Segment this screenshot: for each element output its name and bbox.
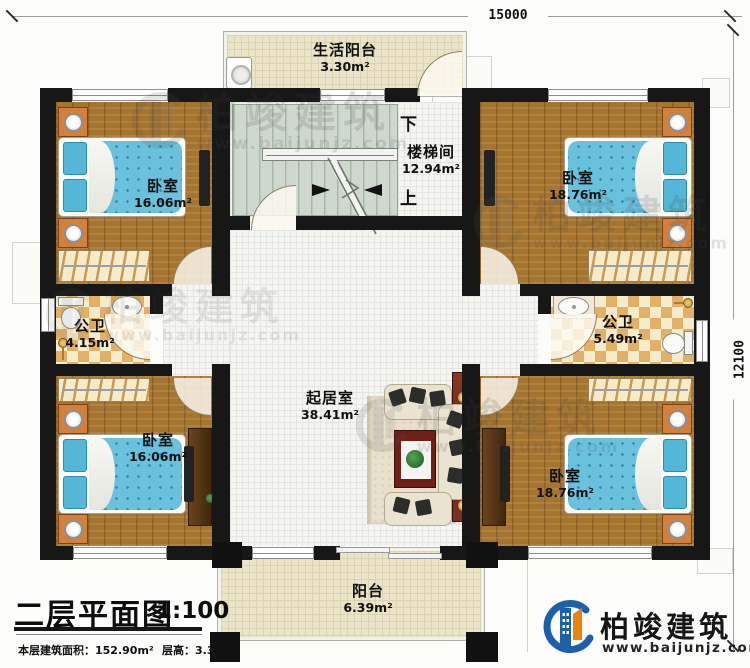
sofa-cushion (409, 387, 427, 405)
wall-segment (296, 216, 462, 230)
wall-segment (385, 88, 420, 102)
nightstand (662, 218, 692, 248)
column (466, 632, 498, 662)
floor-area-text: 本层建筑面积：152.90m² (18, 642, 154, 658)
room-name: 生活阳台 (295, 42, 395, 60)
pillows (663, 439, 687, 509)
floor-height-text: 层高：3.3m (162, 642, 226, 658)
room-name: 起居室 (268, 390, 392, 408)
nightstand (662, 514, 692, 544)
room-area: 18.76m² (515, 188, 641, 203)
corridor-right-floor (462, 284, 538, 376)
room-area: 6.39m² (318, 601, 418, 616)
dimension-line-top (12, 16, 742, 17)
shower-stem (674, 302, 683, 304)
sofa-cushion (415, 499, 432, 516)
wall-segment (150, 296, 163, 314)
wall-segment (230, 216, 250, 230)
wardrobe (588, 378, 692, 402)
nightstand (58, 107, 88, 137)
brand-logo-icon (540, 600, 594, 658)
brand-website: www.baijunjz.com (602, 640, 750, 656)
room-area: 16.06m² (95, 450, 221, 465)
sliding-door-panel (388, 553, 442, 559)
dimension-width: 15000 (468, 8, 548, 23)
nightstand (58, 514, 88, 544)
room-area: 38.41m² (268, 408, 392, 423)
room-area: 18.76m² (502, 486, 628, 501)
tv (484, 150, 495, 206)
floor-plan-canvas: 15000 12100 (0, 0, 750, 668)
wall-segment (462, 102, 480, 296)
room-label-bedroom-top-right: 卧室 18.76m² (515, 170, 641, 202)
sliding-door-panel (336, 547, 390, 553)
wall-segment (652, 546, 710, 560)
nightstand (662, 404, 692, 434)
pillows (63, 439, 87, 509)
toilet (684, 331, 693, 355)
plant (406, 450, 424, 468)
sofa-cushion (429, 390, 446, 407)
wall-segment (56, 364, 172, 376)
room-label-bedroom-bottom-right: 卧室 18.76m² (502, 468, 628, 500)
washing-machine (226, 57, 252, 89)
room-label-stairwell: 楼梯间 12.94m² (396, 144, 466, 176)
window (528, 547, 652, 559)
wall-segment (40, 88, 72, 102)
wardrobe (58, 378, 150, 402)
stair-up-label: 上 (400, 184, 417, 209)
column (212, 542, 242, 568)
window (73, 547, 167, 559)
room-name: 阳台 (318, 583, 418, 601)
window (548, 89, 648, 101)
room-name: 楼梯间 (396, 144, 466, 162)
nightstand (58, 218, 88, 248)
nightstand (662, 107, 692, 137)
sheet-line (527, 548, 528, 652)
room-name: 公卫 (580, 314, 656, 332)
room-label-bedroom-top-left: 卧室 16.06m² (100, 178, 226, 210)
room-area: 4.15m² (52, 336, 128, 351)
wall-segment (648, 88, 710, 102)
window (696, 320, 708, 362)
room-label-living-room: 起居室 38.41m² (268, 390, 392, 422)
room-area: 12.94m² (396, 162, 466, 177)
room-area: 16.06m² (100, 196, 226, 211)
room-area: 3.30m² (295, 60, 395, 75)
room-name: 公卫 (52, 318, 128, 336)
title-rule (14, 627, 202, 631)
room-label-bathroom-right: 公卫 5.49m² (580, 314, 656, 346)
wardrobe (588, 250, 692, 282)
wardrobe (58, 250, 150, 282)
column (466, 542, 498, 568)
wall-segment (520, 284, 694, 296)
window (252, 547, 314, 559)
wall-segment (440, 546, 462, 560)
toilet (58, 297, 84, 306)
room-label-balcony: 阳台 6.39m² (318, 583, 418, 615)
title-rule (16, 634, 202, 635)
plan-scale: 1:100 (156, 598, 229, 624)
pillows (63, 142, 87, 212)
room-label-bedroom-bottom-left: 卧室 16.06m² (95, 432, 221, 464)
pillows (663, 142, 687, 212)
room-name: 卧室 (502, 468, 628, 486)
toilet-bowl (662, 333, 685, 354)
wall-segment (462, 364, 480, 546)
corridor-left-floor (163, 284, 230, 376)
stair-down-label: 下 (400, 110, 417, 135)
room-label-bathroom-left: 公卫 4.15m² (52, 318, 128, 350)
wall-segment (40, 546, 73, 560)
sheet-mark (12, 242, 42, 304)
room-name: 卧室 (100, 178, 226, 196)
room-label-life-balcony: 生活阳台 3.30m² (295, 42, 395, 74)
window (320, 89, 385, 101)
dimension-height: 12100 (733, 320, 748, 400)
window (72, 89, 168, 101)
wall-segment (462, 88, 548, 102)
bed-sheet (635, 438, 661, 510)
wall-segment (168, 88, 320, 102)
room-area: 5.49m² (580, 332, 656, 347)
shower-head (683, 298, 693, 308)
wall-segment (520, 364, 694, 376)
room-name: 卧室 (95, 432, 221, 450)
wall-segment (538, 296, 551, 314)
room-name: 卧室 (515, 170, 641, 188)
wall-segment (56, 284, 172, 296)
nightstand (58, 404, 88, 434)
